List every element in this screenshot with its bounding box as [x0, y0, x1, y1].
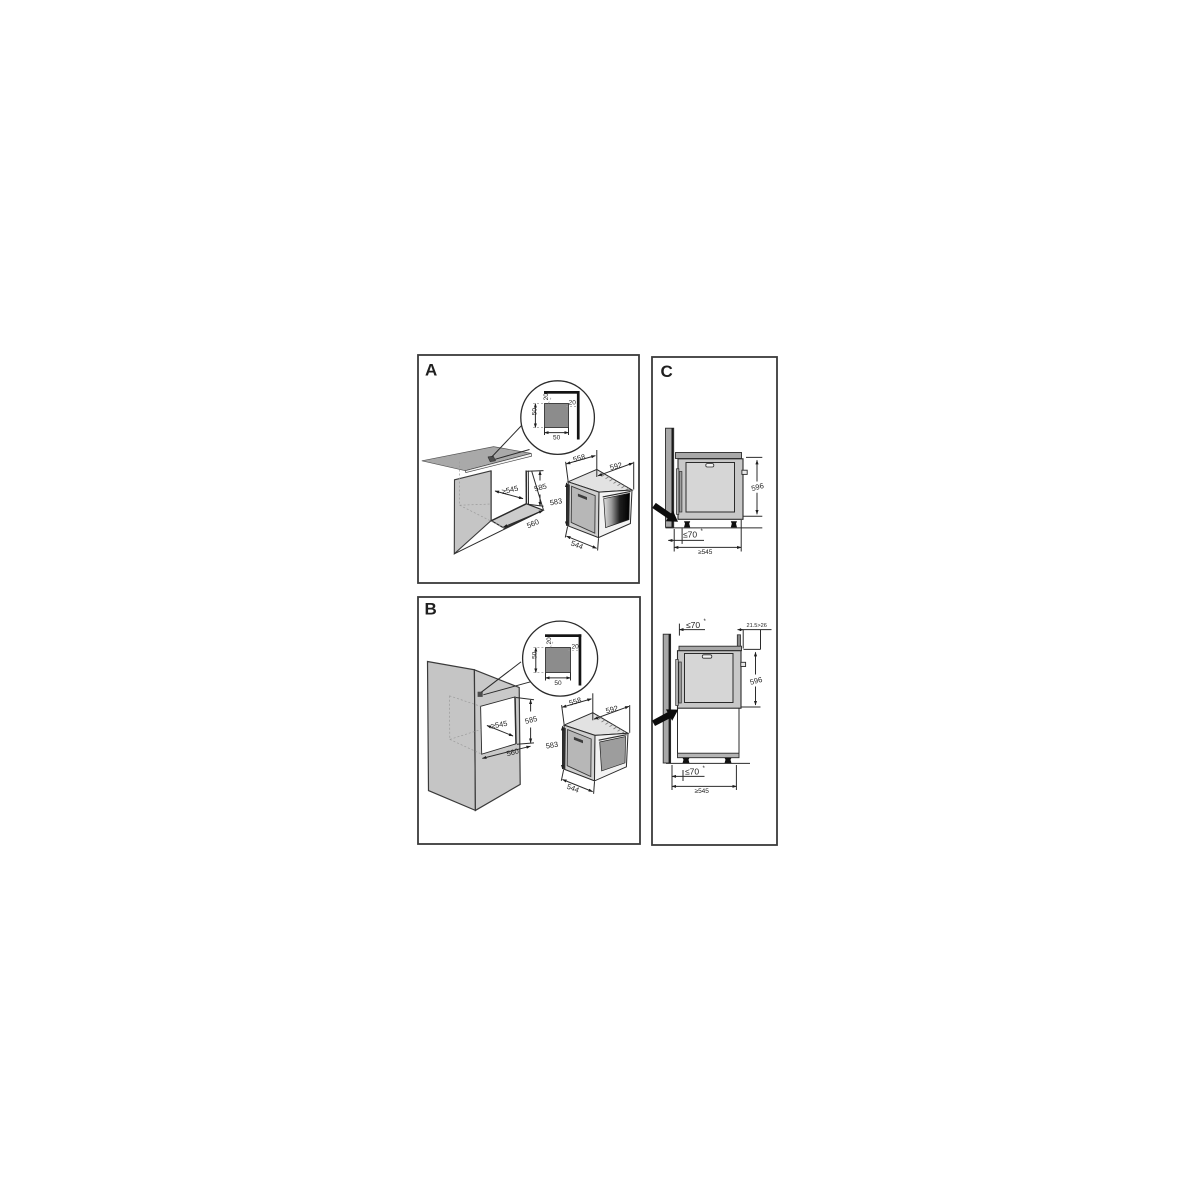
svg-text:21.5>26: 21.5>26 [747, 623, 767, 629]
svg-text:20: 20 [543, 393, 550, 401]
svg-text:C: C [661, 362, 673, 381]
svg-text:≤70: ≤70 [685, 767, 699, 777]
svg-text:50: 50 [553, 435, 561, 442]
svg-text:50: 50 [554, 680, 562, 687]
svg-text:50: 50 [532, 408, 539, 416]
svg-text:20: 20 [546, 637, 553, 645]
svg-text:20: 20 [572, 644, 580, 651]
svg-text:A: A [425, 361, 437, 380]
svg-text:20: 20 [569, 399, 577, 406]
svg-text:≥545: ≥545 [698, 549, 713, 556]
svg-text:B: B [425, 600, 437, 619]
svg-text:≥545: ≥545 [695, 788, 710, 795]
svg-text:≤70: ≤70 [686, 620, 700, 630]
svg-text:50: 50 [532, 651, 539, 659]
svg-text:≤70: ≤70 [683, 530, 697, 540]
